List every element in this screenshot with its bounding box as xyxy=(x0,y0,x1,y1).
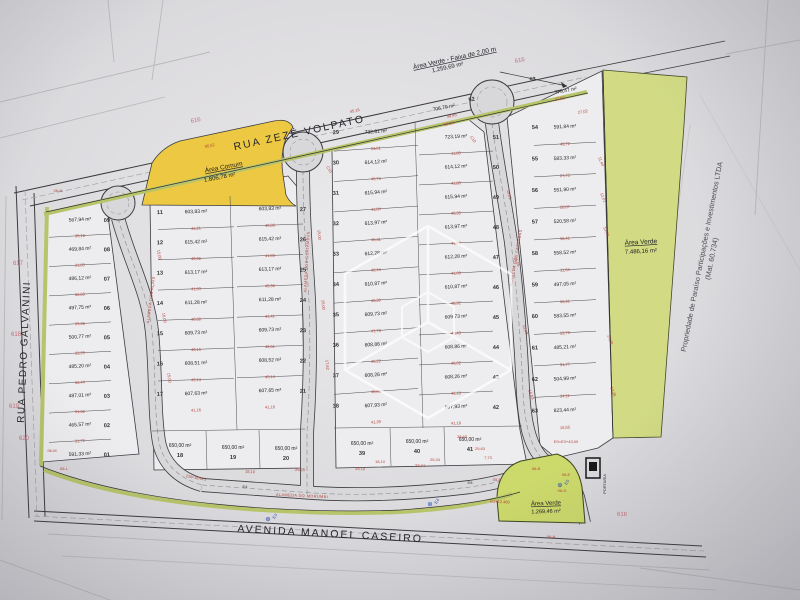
boundary-point-label: 06-L xyxy=(60,466,69,471)
lot-area: 614,12 m² xyxy=(445,163,468,170)
lot-area: 608,51 m² xyxy=(185,360,208,367)
lot-area: 823,44 m² xyxy=(554,407,577,414)
lot-area: 650,00 m² xyxy=(351,441,374,447)
lot-dimension: 40,88 xyxy=(191,316,202,321)
survey-stake-label: 619 xyxy=(9,404,20,410)
lot-dimension: 32,89 xyxy=(75,291,86,297)
lot-dimension: 40,31 xyxy=(371,237,382,243)
lot-dimension: 41,41 xyxy=(265,313,276,318)
lot-area: 611,28 m² xyxy=(259,297,282,304)
lot-area: 615,42 m² xyxy=(259,236,282,243)
lot-dimension: 40,98 xyxy=(265,283,276,288)
lot-area: 567,94 m² xyxy=(69,216,92,223)
lot-dimension: 41,16 xyxy=(191,407,202,412)
lot-dimension: 30,18 xyxy=(75,233,86,239)
lot-dimension: 42,51 xyxy=(265,344,276,349)
plat-map: PORTARIA RUA ZEZÉ VOLPATO RUA PEDRO GALV… xyxy=(0,0,800,600)
portaria-label: PORTARIA xyxy=(602,474,607,494)
lot-number: 51 xyxy=(493,135,500,141)
lot-dimension: 40,98 xyxy=(191,256,202,261)
lot-number: 56 xyxy=(532,188,539,194)
lot-number: 41 xyxy=(467,447,473,453)
lot-area: 607,65 m² xyxy=(259,387,282,394)
lot-area: 487,01 m² xyxy=(69,392,92,399)
lot-number: 22 xyxy=(300,358,306,364)
lot-number: 62 xyxy=(532,377,539,383)
lot-dimension: 41,09 xyxy=(451,270,462,276)
lot-number: 60 xyxy=(532,314,539,320)
station-label: E8 xyxy=(468,480,474,485)
lot-number: 49 xyxy=(493,195,500,201)
lot-number: 40 xyxy=(414,449,420,455)
lot-number: 12 xyxy=(157,240,163,246)
lot-dimension: 42,18 xyxy=(451,390,462,396)
lot-area: 591,84 m² xyxy=(554,123,577,130)
lot-dimension: 41,83 xyxy=(191,286,202,291)
lot-dimension: 41,84 xyxy=(371,206,382,212)
lot-number: 16 xyxy=(157,361,163,367)
lot-dimension: 7,73 xyxy=(484,455,493,460)
lot-dimension: 40,22 xyxy=(371,358,382,364)
lot-dimension: 41,39 xyxy=(371,419,382,425)
lot-number: 05 xyxy=(104,335,111,341)
lot-dimension: 27,75 xyxy=(560,173,571,179)
area-verde-bottom-label: Área Verde xyxy=(531,499,562,507)
lot-dimension: 33,79 xyxy=(560,330,571,336)
boundary-point-label: 06-M xyxy=(47,448,56,453)
lot-dimension: 40,02 xyxy=(451,360,462,366)
lot-number: 63 xyxy=(532,408,539,414)
lot-dimension: 33,29 xyxy=(75,350,86,356)
lot-dimension: 40,44 xyxy=(371,267,382,273)
lot-area: 486,12 m² xyxy=(69,275,92,282)
lot-dimension: 49,72 xyxy=(560,141,571,147)
lot-number: 61 xyxy=(532,345,539,351)
lot-number: 01 xyxy=(104,452,111,458)
lot-area: 609,73 m² xyxy=(445,313,468,320)
lot-number: 55 xyxy=(532,156,539,162)
dimension-label: 23,74 xyxy=(415,463,426,468)
lot-number: 15 xyxy=(157,331,163,337)
lot-area: 608,52 m² xyxy=(259,357,282,364)
lot-number: 35 xyxy=(333,312,340,318)
dimension-label: 25,10 xyxy=(355,466,366,471)
lot-dimension: 43,14 xyxy=(191,377,202,382)
lot-dimension: 32,44 xyxy=(75,379,86,385)
lot-number: 20 xyxy=(283,456,289,462)
lot-dimension: 11,64 xyxy=(560,267,571,273)
lot-number: 09 xyxy=(104,218,111,224)
scanned-subdivision-plan-photo: PORTARIA RUA ZEZÉ VOLPATO RUA PEDRO GALV… xyxy=(0,0,800,600)
lot-number: 08 xyxy=(104,247,111,253)
lot-number: 36 xyxy=(333,343,340,349)
lot-number: 24 xyxy=(300,298,307,304)
lot-area: 609,73 m² xyxy=(259,327,282,334)
lot-number: 38 xyxy=(333,403,340,409)
lot-dimension: 40,35 xyxy=(451,210,462,216)
dimension-label: 29,63 xyxy=(475,446,486,451)
boundary-point-label: 06-N xyxy=(54,188,63,193)
lot-number: 46 xyxy=(493,285,500,291)
station-equation-label: E9=E3+43,00 xyxy=(554,439,579,444)
lot-number: 17 xyxy=(157,392,163,398)
lot-number: 57 xyxy=(532,219,539,225)
lot-number: 31 xyxy=(333,191,340,197)
lot-number: 14 xyxy=(157,301,164,307)
lot-number: 29 xyxy=(333,130,340,136)
lot-area: 613,97 m² xyxy=(445,223,468,230)
lot-dimension: 15,55 xyxy=(560,425,571,431)
dimension-label: 25,25 xyxy=(295,467,306,472)
lot-area: 485,20 m² xyxy=(69,363,92,370)
lot-dimension: 40,88 xyxy=(265,222,276,227)
lot-number: 39 xyxy=(359,451,365,457)
lot-area: 469,84 m² xyxy=(69,246,92,253)
lot-area: 615,94 m² xyxy=(445,193,468,200)
lot-area: 650,00 m² xyxy=(169,443,192,449)
lot-dimension: 43,14 xyxy=(265,374,276,379)
lot-area: 611,28 m² xyxy=(185,300,208,307)
lot-dimension: 41,18 xyxy=(451,420,462,426)
lot-number: 30 xyxy=(333,160,340,166)
dimension-label: 18,10 xyxy=(245,469,256,475)
lot-dimension: 40,92 xyxy=(451,300,462,306)
lot-dimension: 32,91 xyxy=(560,299,571,305)
lot-area: 607,63 m² xyxy=(185,390,208,397)
boundary-point-label: 06-B xyxy=(532,466,541,471)
lot-number: 02 xyxy=(104,423,111,429)
lot-number: 48 xyxy=(493,225,500,231)
lot-area: 650,00 m² xyxy=(275,446,298,452)
dimension-label: 38,63 xyxy=(457,434,468,439)
lot-area: 608,86 m² xyxy=(445,343,468,350)
lot-dimension: 41,80 xyxy=(451,180,462,186)
lot-area: 603,83 m² xyxy=(259,206,282,213)
lot-area: 497,05 m² xyxy=(554,281,577,288)
lot-area: 558,52 m² xyxy=(554,249,577,256)
lot-area: 583,55 m² xyxy=(554,312,577,319)
lot-number: 06 xyxy=(104,306,111,312)
lot-dimension: 23,01 xyxy=(371,145,382,151)
lot-area: 610,87 m² xyxy=(445,283,468,290)
lot-area: 608,26 m² xyxy=(445,373,468,380)
lot-number: 47 xyxy=(493,255,500,261)
lot-dimension: 11,80 xyxy=(451,150,462,156)
lot-dimension: 33,38 xyxy=(75,321,86,327)
lot-number: 18 xyxy=(177,453,183,459)
lot-number: 42 xyxy=(493,405,500,411)
lot-number: 52 xyxy=(468,96,475,103)
lot-number: 11 xyxy=(157,210,163,216)
boundary-point-label: 06-E xyxy=(562,472,571,477)
lot-area: 613,17 m² xyxy=(185,269,208,276)
lot-dimension: 40,16 xyxy=(191,347,202,352)
lot-dimension: 18,10 xyxy=(375,459,386,464)
lot-dimension: 36,41 xyxy=(560,236,571,242)
lot-area: 504,99 m² xyxy=(554,375,577,382)
lot-dimension: 41,16 xyxy=(265,404,276,409)
lot-area: 551,90 m² xyxy=(554,186,577,193)
lot-dimension: 28,87 xyxy=(560,204,571,210)
lot-number: 53 xyxy=(529,76,536,83)
lot-dimension: 41,21 xyxy=(191,225,202,230)
lot-area: 500,77 m² xyxy=(69,334,92,341)
lot-area: 583,33 m² xyxy=(554,155,577,162)
lot-number: 50 xyxy=(493,165,500,171)
lot-dimension: 31,85 xyxy=(75,262,86,268)
lot-number: 19 xyxy=(230,455,236,461)
lot-dimension: 31,62 xyxy=(75,409,86,415)
boundary-point-label: 05-E xyxy=(493,477,502,482)
lot-area: 609,73 m² xyxy=(185,330,208,337)
lot-dimension: 25,34 xyxy=(430,457,441,462)
lot-number: 32 xyxy=(333,221,340,227)
lot-number: 59 xyxy=(532,282,539,288)
block-b xyxy=(150,176,306,470)
lot-number: 33 xyxy=(333,251,340,257)
lot-number: 21 xyxy=(300,389,306,395)
lot-dimension: 46,76 xyxy=(371,176,382,182)
survey-stake-label: 617 xyxy=(13,261,24,267)
lot-dimension: 41,83 xyxy=(265,253,276,258)
lot-area: 520,58 m² xyxy=(554,218,577,225)
lot-dimension: 40,30 xyxy=(371,297,382,303)
lot-area: 485,21 m² xyxy=(554,344,577,351)
lot-area: 615,42 m² xyxy=(185,239,208,246)
lot-dimension: 41,78 xyxy=(371,328,382,334)
survey-stake-label: 620 xyxy=(19,436,30,442)
lot-number: 27 xyxy=(300,207,306,213)
survey-stake-label: 616 xyxy=(617,512,628,518)
lot-number: 37 xyxy=(333,373,340,379)
lot-area: 612,28 m² xyxy=(445,253,468,260)
lot-number: 26 xyxy=(300,237,306,243)
lot-number: 58 xyxy=(532,251,539,257)
lot-area: 723,19 m² xyxy=(445,133,468,140)
lot-number: 13 xyxy=(157,270,163,276)
lot-number: 23 xyxy=(300,328,306,334)
lot-dimension: 34,11 xyxy=(560,393,571,399)
lot-area: 497,75 m² xyxy=(69,304,92,311)
cul-de-sac-1 xyxy=(101,186,135,220)
boundary-point-label: 06-A xyxy=(547,534,556,539)
lot-number: 07 xyxy=(104,276,111,282)
lot-area: 603,83 m² xyxy=(185,209,208,216)
lot-number: 25 xyxy=(300,267,306,273)
lot-area: 465,57 m² xyxy=(69,421,92,428)
lot-area: 650,00 m² xyxy=(406,439,429,445)
lot-dimension: 31,72 xyxy=(75,438,86,444)
station-equation-label: E1+12.480 xyxy=(490,498,510,504)
lot-number: 45 xyxy=(493,315,500,321)
lot-number: 03 xyxy=(104,394,111,400)
lot-dimension: 31,77 xyxy=(560,362,571,368)
area-verde-bottom-area: 1.269,46 m² xyxy=(531,508,561,515)
lot-area: 650,00 m² xyxy=(222,445,245,451)
survey-stake-label: 618 xyxy=(11,332,22,338)
lot-area: 591,33 m² xyxy=(69,451,92,458)
lot-area: 613,17 m² xyxy=(259,266,282,273)
station-label: E4 xyxy=(243,484,249,489)
